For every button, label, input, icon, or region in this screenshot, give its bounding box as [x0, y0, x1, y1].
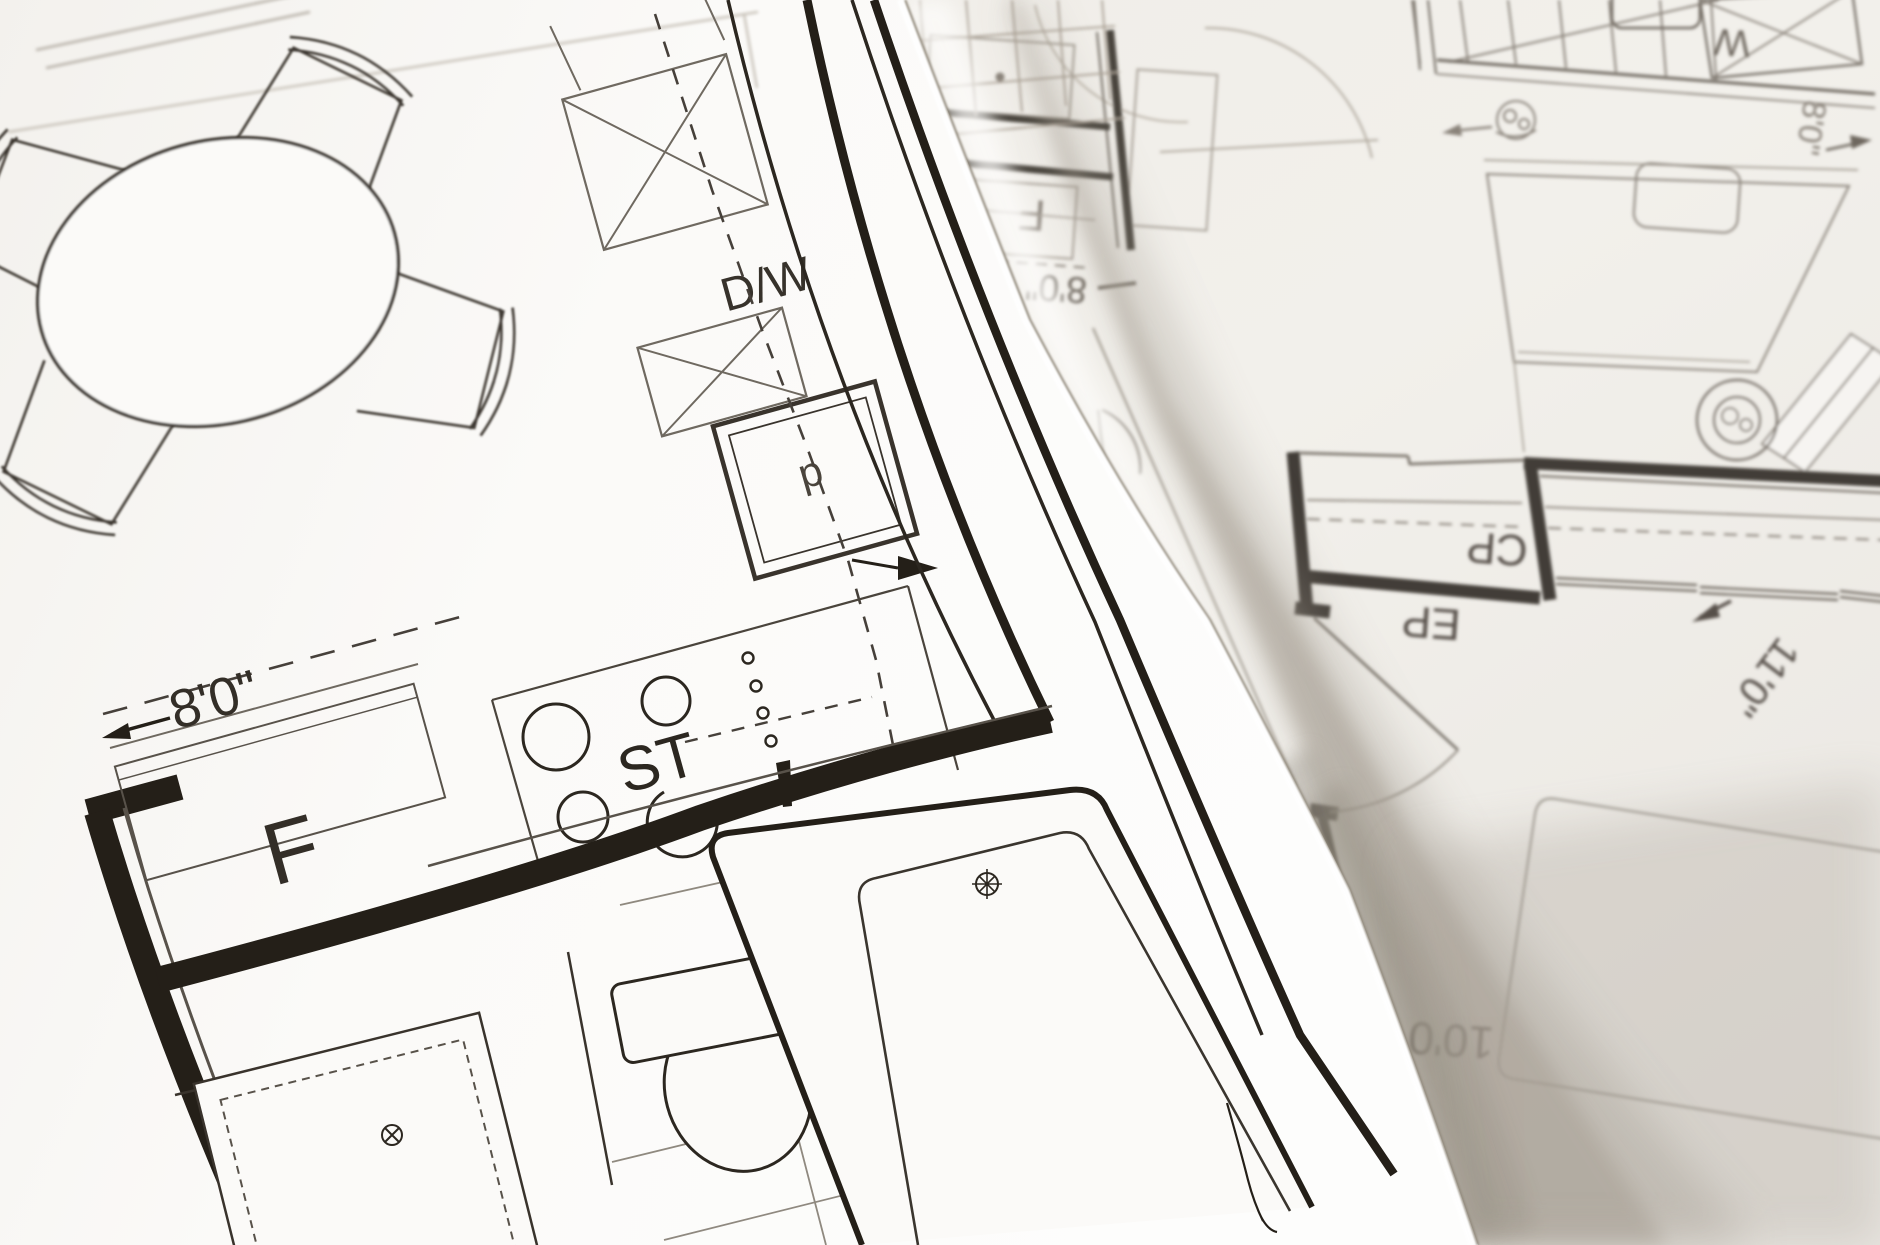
svg-text:W: W: [1713, 20, 1752, 64]
svg-text:CP: CP: [1465, 522, 1529, 575]
svg-text:EP: EP: [1400, 596, 1462, 649]
